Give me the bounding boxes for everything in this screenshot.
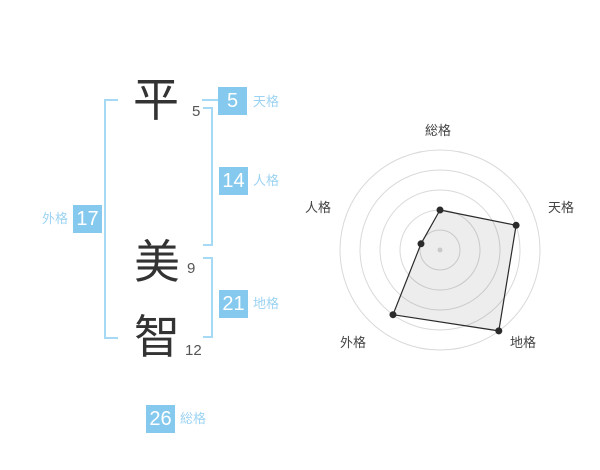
- givenname-char-2-stroke-count: 12: [185, 343, 202, 358]
- radar-axis-label-tenkaku: 天格: [548, 201, 574, 215]
- givenname-char-1-stroke-count: 9: [187, 261, 195, 276]
- soukaku-label: 総格: [180, 412, 206, 426]
- tenkaku-value-badge: 5: [218, 87, 247, 115]
- radar-data-polygon: [393, 210, 516, 331]
- radar-data-point: [390, 311, 397, 318]
- radar-axis-label-chikaku: 地格: [510, 336, 536, 350]
- jinkaku-value-badge: 14: [219, 167, 248, 195]
- chikaku-label: 地格: [253, 297, 279, 311]
- surname-char-1: 平: [131, 77, 181, 123]
- gaikaku-bracket: [104, 99, 118, 339]
- soukaku-value-badge: 26: [146, 405, 175, 433]
- radar-center-dot: [438, 248, 443, 253]
- chikaku-value-badge: 21: [219, 290, 248, 318]
- gaikaku-value-badge: 17: [73, 205, 102, 233]
- radar-data-point: [437, 207, 444, 214]
- tenkaku-connector-line: [202, 99, 218, 101]
- radar-chart-canvas: [290, 100, 590, 400]
- jinkaku-label: 人格: [253, 174, 279, 188]
- tenkaku-label: 天格: [253, 95, 279, 109]
- givenname-char-1: 美: [132, 239, 182, 285]
- radar-axis-label-jinkaku: 人格: [305, 201, 331, 215]
- name-fortune-panel: 平 5 美 9 智 12 5 天格 14 人格 21 地格 17 外格 26 総…: [0, 0, 600, 470]
- surname-char-1-stroke-count: 5: [192, 104, 200, 119]
- radar-data-point: [513, 222, 520, 229]
- jinkaku-bracket: [203, 107, 213, 246]
- chikaku-bracket: [203, 257, 213, 338]
- radar-axis-label-gaikaku: 外格: [340, 336, 366, 350]
- radar-chart: [290, 100, 590, 400]
- radar-axis-label-soukaku: 総格: [425, 124, 451, 138]
- gaikaku-label: 外格: [42, 212, 68, 226]
- givenname-char-2: 智: [132, 314, 182, 360]
- radar-data-point: [418, 240, 425, 247]
- radar-data-point: [495, 327, 502, 334]
